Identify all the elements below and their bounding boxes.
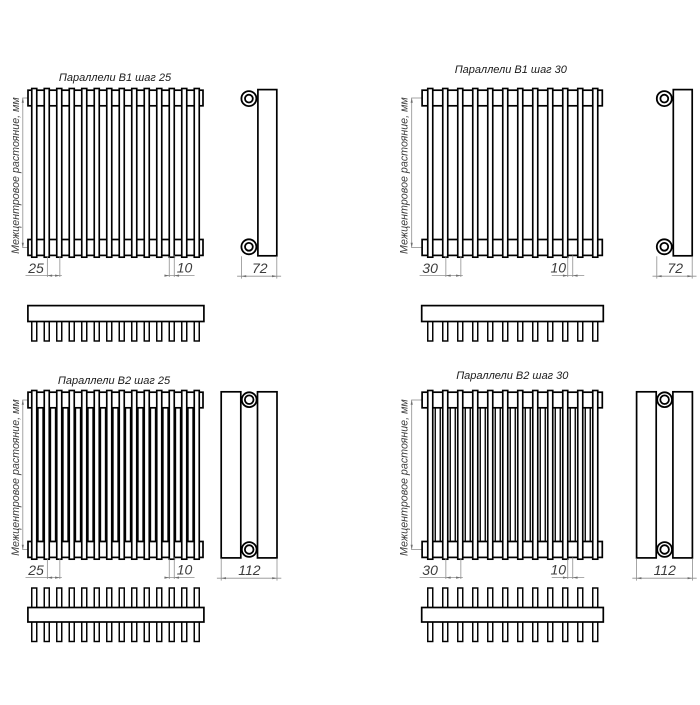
svg-text:25: 25 (27, 562, 44, 578)
svg-text:25: 25 (27, 260, 44, 276)
svg-text:112: 112 (238, 562, 261, 578)
svg-text:Межцентровое растояние, мм: Межцентровое растояние, мм (399, 399, 411, 556)
svg-text:10: 10 (177, 562, 193, 578)
svg-text:72: 72 (667, 260, 683, 276)
svg-text:72: 72 (252, 260, 268, 276)
svg-text:10: 10 (177, 260, 193, 276)
svg-text:Межцентровое растояние, мм: Межцентровое растояние, мм (399, 97, 411, 254)
svg-text:Межцентровое растояние, мм: Межцентровое растояние, мм (10, 97, 22, 254)
svg-text:Параллели В2 шаг 25: Параллели В2 шаг 25 (58, 375, 171, 387)
svg-text:10: 10 (550, 260, 566, 276)
svg-text:10: 10 (550, 562, 566, 578)
svg-text:Параллели В1 шаг 30: Параллели В1 шаг 30 (455, 64, 568, 76)
svg-text:30: 30 (422, 562, 438, 578)
svg-text:Параллели В1 шаг 25: Параллели В1 шаг 25 (59, 72, 172, 84)
svg-text:Межцентровое растояние, мм: Межцентровое растояние, мм (10, 399, 22, 556)
svg-text:30: 30 (422, 260, 438, 276)
svg-text:112: 112 (654, 562, 677, 578)
svg-text:Параллели В2 шаг 30: Параллели В2 шаг 30 (456, 370, 569, 382)
